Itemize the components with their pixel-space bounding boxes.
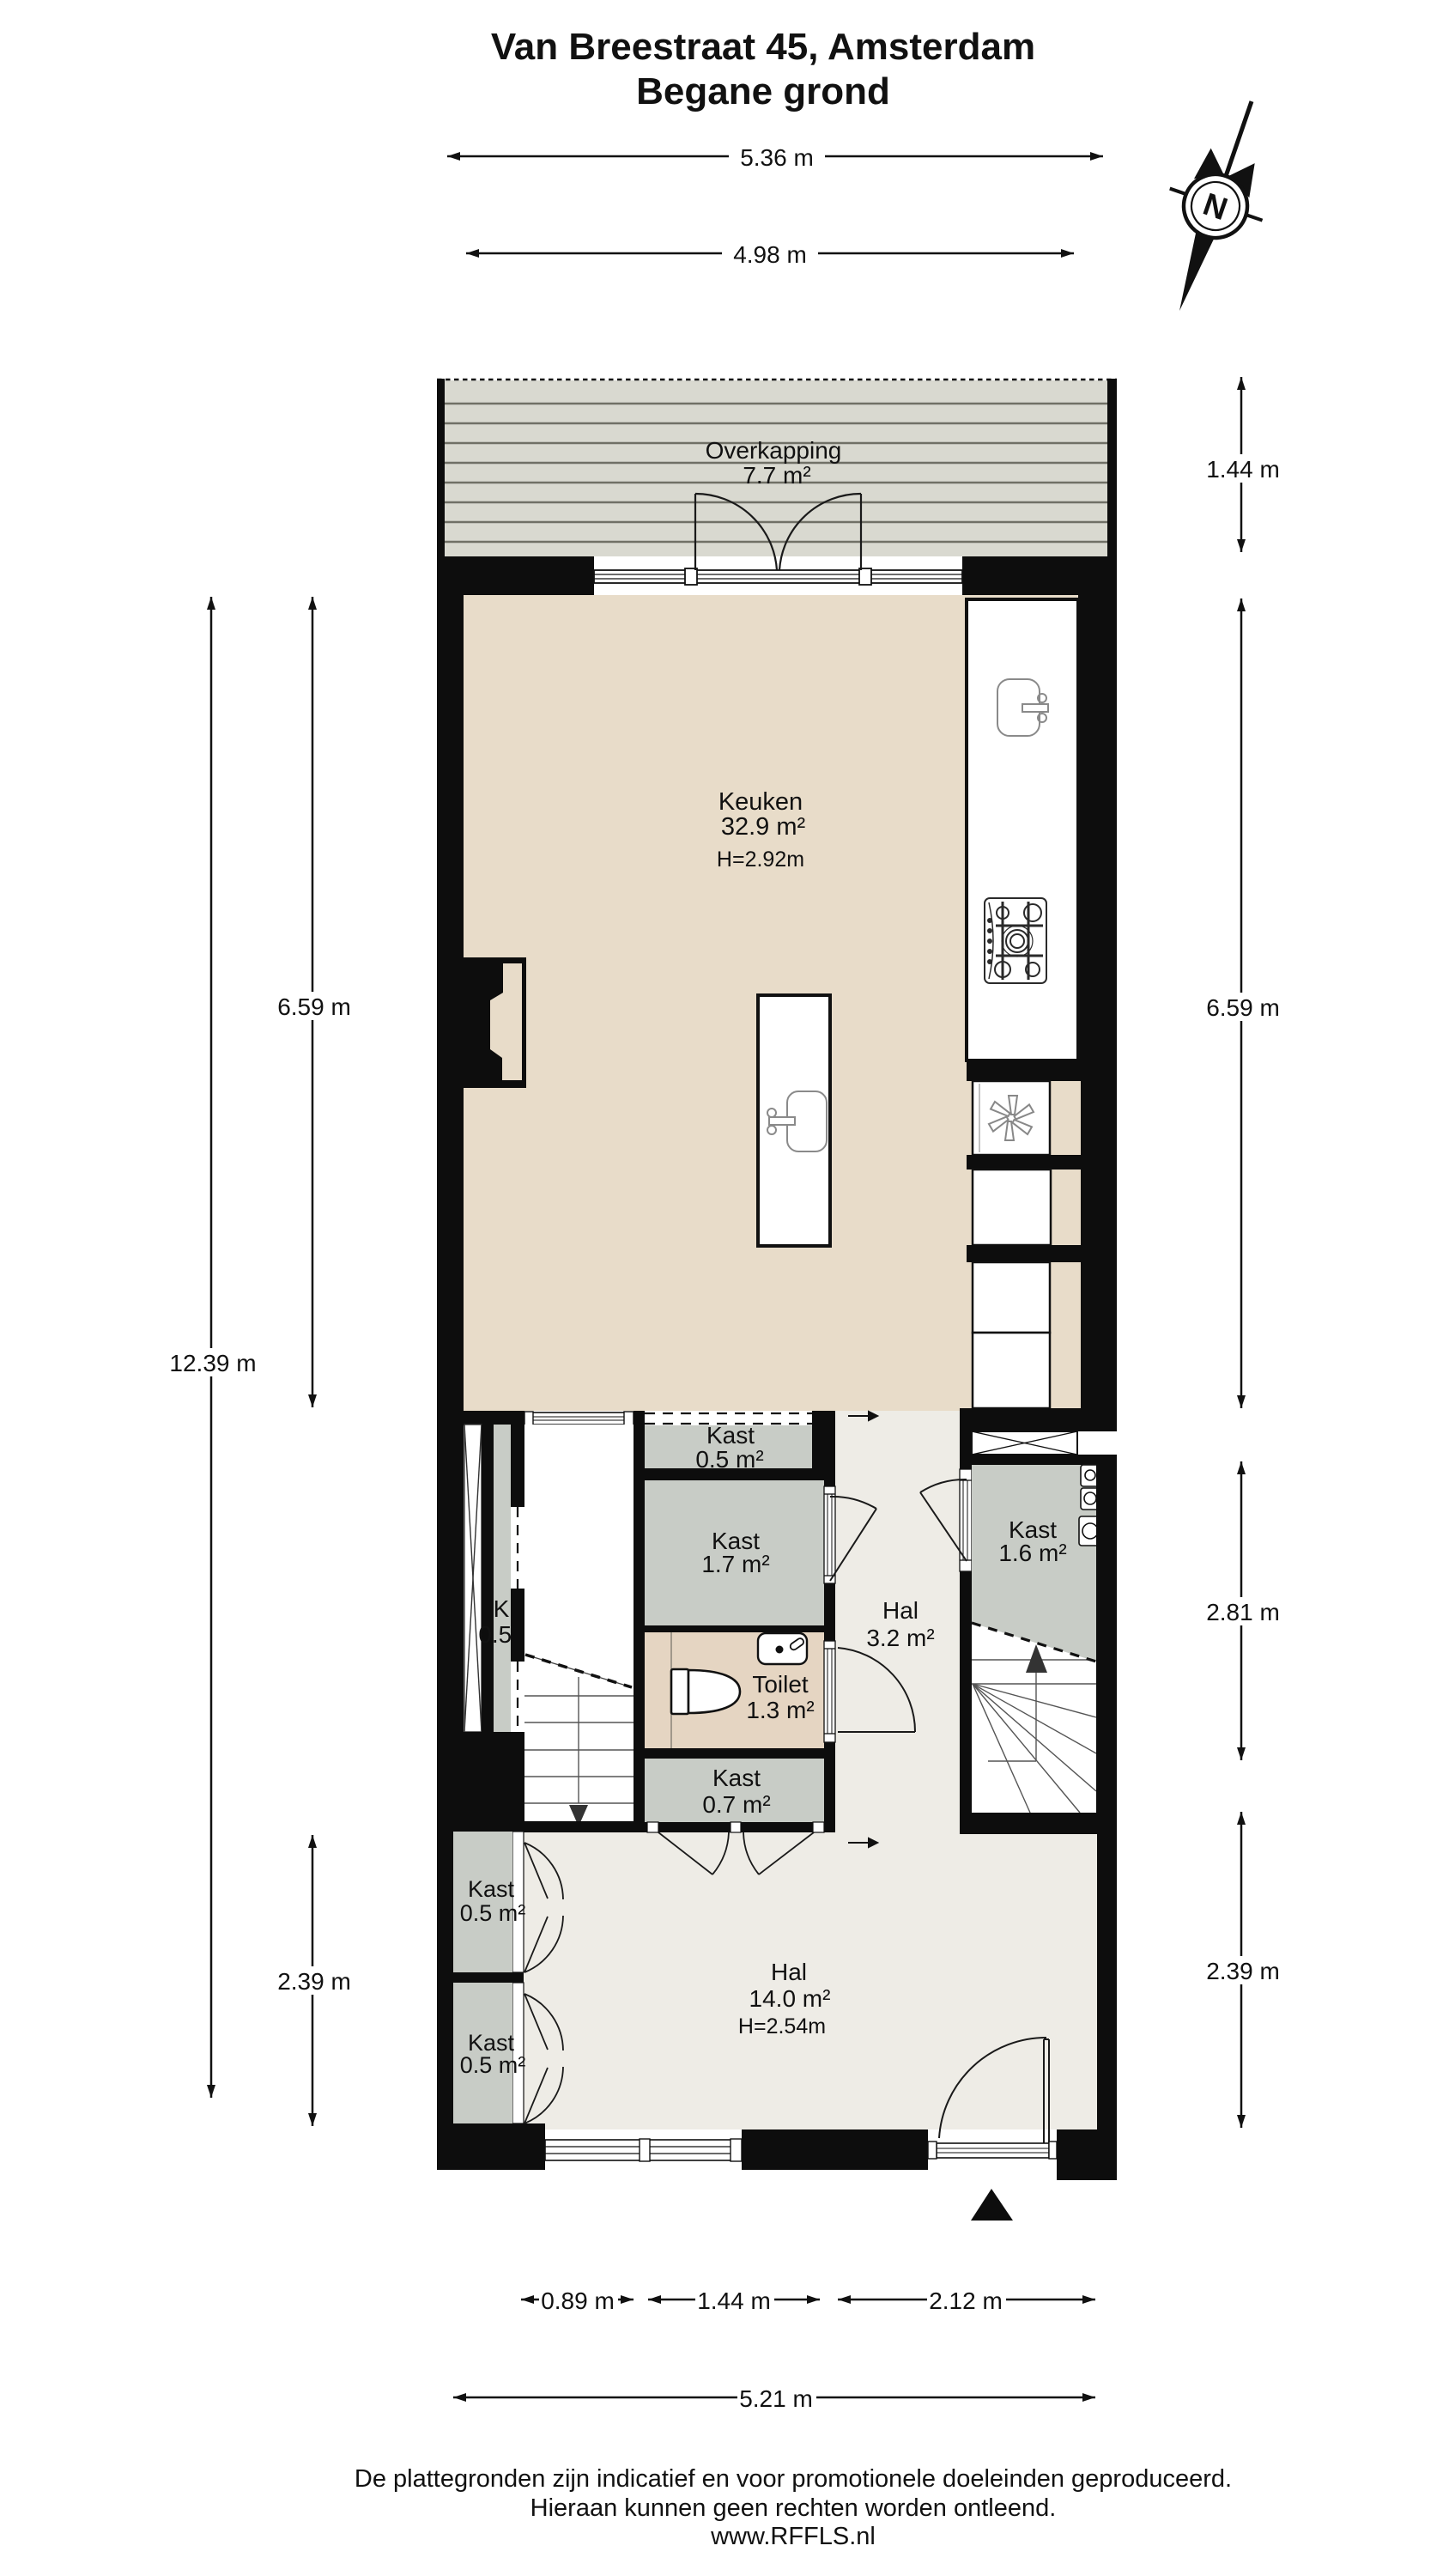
svg-text:Hal: Hal [882,1597,919,1624]
svg-text:2.39 m: 2.39 m [277,1968,351,1995]
svg-text:H=2.54m: H=2.54m [738,2014,826,2038]
svg-text:Keuken: Keuken [718,788,803,816]
svg-text:Hieraan kunnen geen rechten wo: Hieraan kunnen geen rechten worden ontle… [530,2494,1057,2522]
svg-text:H=2.92m: H=2.92m [717,848,804,872]
svg-text:Kast: Kast [468,1876,515,1902]
svg-text:6.59 m: 6.59 m [277,993,351,1020]
svg-text:Hal: Hal [771,1959,807,1985]
svg-text:0.5 m²: 0.5 m² [460,1900,526,1926]
svg-text:2.12 m: 2.12 m [929,2287,1003,2314]
svg-text:5.21 m: 5.21 m [739,2385,813,2412]
svg-text:5.36 m: 5.36 m [740,144,814,171]
svg-text:14.0 m²: 14.0 m² [749,1985,831,2012]
svg-text:32.9 m²: 32.9 m² [721,813,806,841]
svg-text:2.81 m: 2.81 m [1206,1599,1280,1625]
svg-text:4.98 m: 4.98 m [733,241,807,268]
svg-text:0.89 m: 0.89 m [541,2287,615,2314]
svg-text:6.59 m: 6.59 m [1206,994,1280,1021]
svg-text:2.39 m: 2.39 m [1206,1958,1280,1984]
svg-text:0.5 m²: 0.5 m² [460,2052,526,2078]
svg-text:Overkapping: Overkapping [706,437,842,464]
svg-text:12.39 m: 12.39 m [169,1350,256,1376]
svg-text:Toilet: Toilet [752,1671,809,1698]
svg-text:1.6 m²: 1.6 m² [998,1540,1066,1566]
svg-text:1.7 m²: 1.7 m² [701,1551,769,1577]
svg-text:3.2 m²: 3.2 m² [866,1625,934,1651]
svg-text:1.44 m: 1.44 m [1206,456,1280,483]
svg-text:1.3 m²: 1.3 m² [746,1697,814,1723]
svg-text:K: K [494,1595,510,1622]
svg-text:Kast: Kast [706,1422,755,1449]
svg-text:www.RFFLS.nl: www.RFFLS.nl [710,2523,876,2550]
svg-text:0.7 m²: 0.7 m² [702,1791,770,1818]
svg-text:Begane grond: Begane grond [636,70,890,112]
svg-text:Kast: Kast [712,1765,761,1791]
svg-text:Van Breestraat 45, Amsterdam: Van Breestraat 45, Amsterdam [491,26,1035,68]
svg-text:1.44 m: 1.44 m [697,2287,771,2314]
svg-text:7.7 m²: 7.7 m² [743,462,810,489]
svg-text:De plattegronden zijn indicati: De plattegronden zijn indicatief en voor… [355,2465,1232,2493]
